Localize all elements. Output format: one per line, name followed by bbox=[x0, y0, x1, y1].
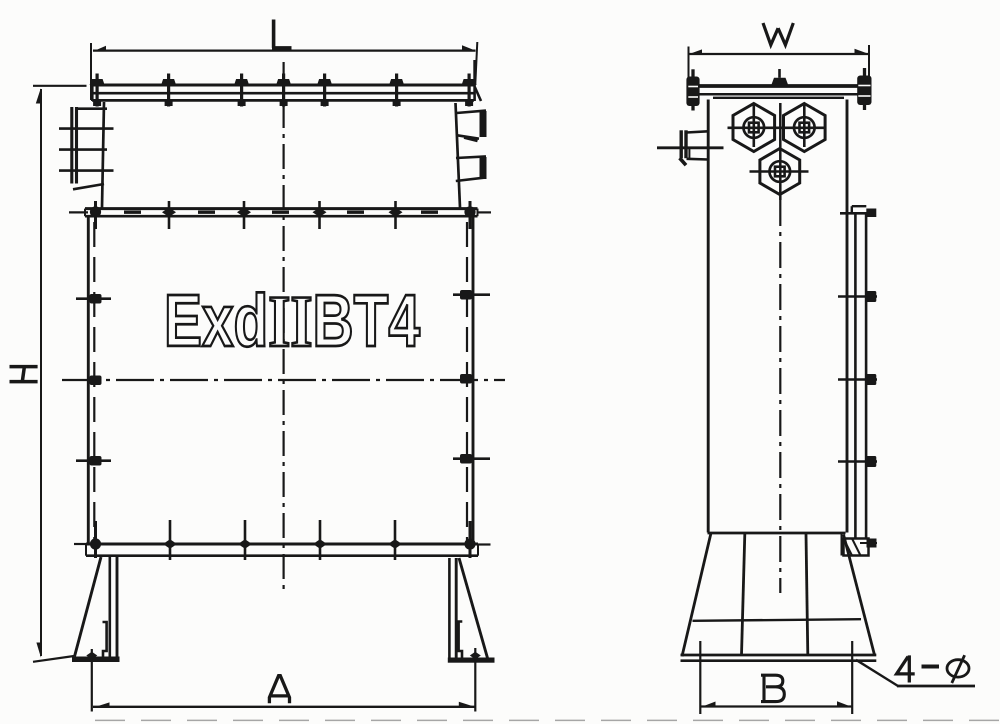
svg-text:ExdIIBT4: ExdIIBT4 bbox=[164, 279, 420, 363]
